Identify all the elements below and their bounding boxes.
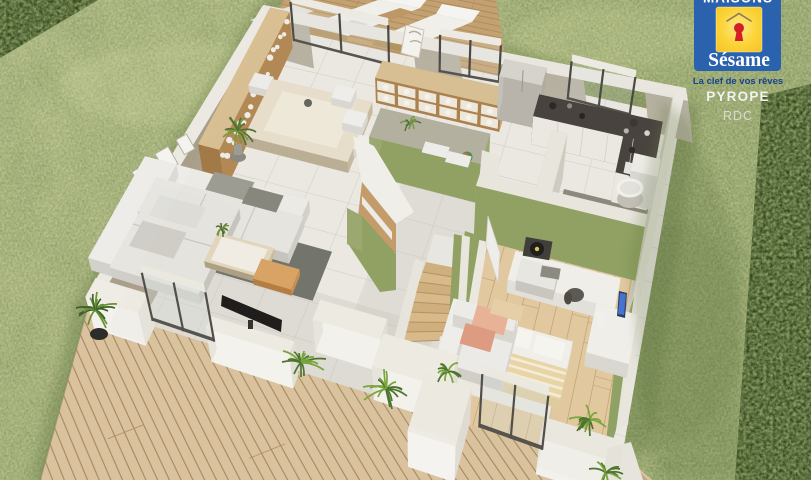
svg-text:MAISONS: MAISONS (703, 0, 773, 6)
svg-text:Sésame: Sésame (708, 50, 770, 71)
svg-text:RDC: RDC (723, 109, 753, 123)
svg-text:La clef de vos rêves: La clef de vos rêves (693, 76, 783, 87)
svg-text:PYROPE: PYROPE (706, 89, 769, 104)
